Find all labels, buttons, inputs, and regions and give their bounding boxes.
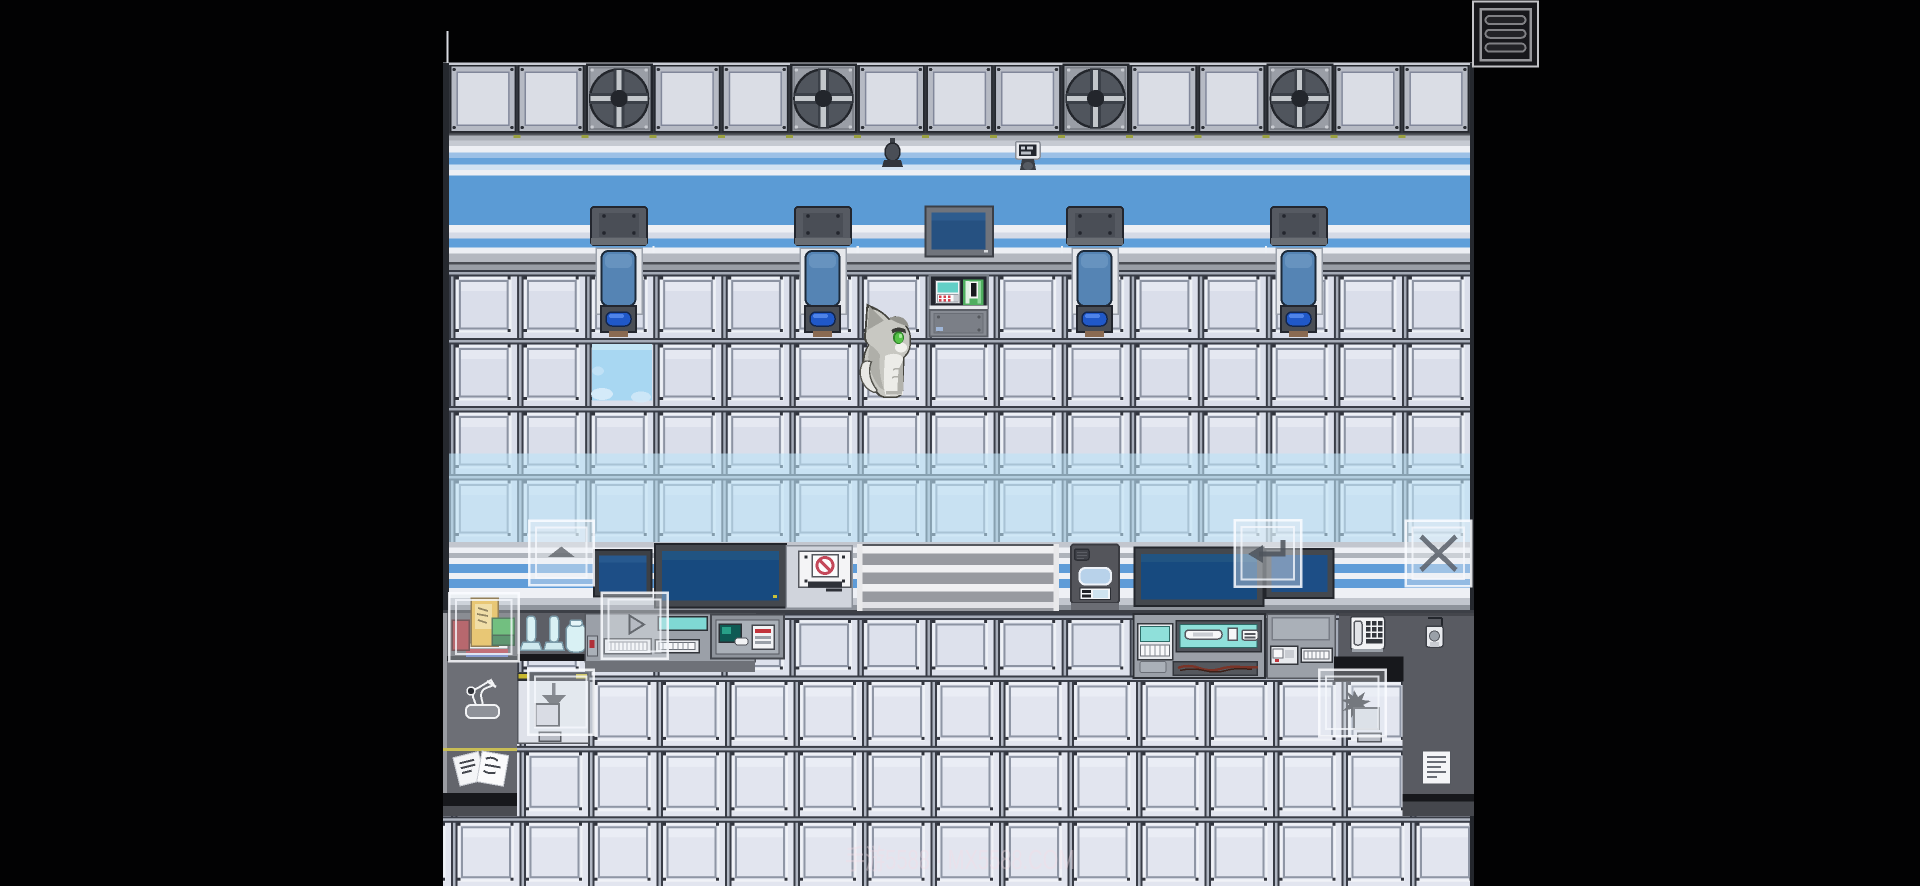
svg-text:手游5588 · MX5588.COM: 手游5588 · MX5588.COM — [845, 844, 1075, 875]
